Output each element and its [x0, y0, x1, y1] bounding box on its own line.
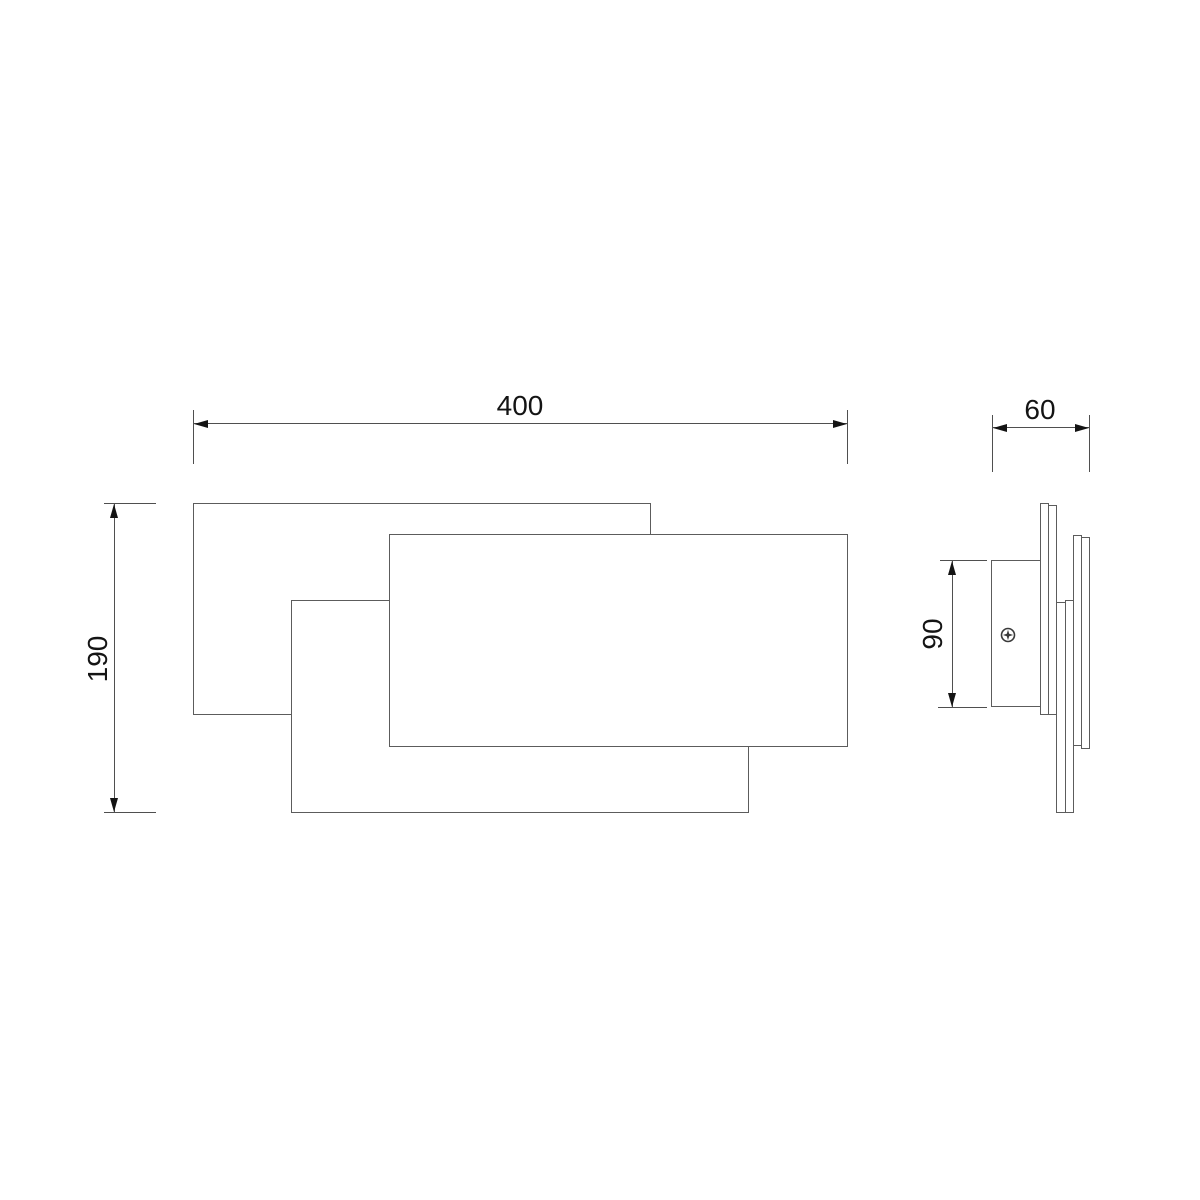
arrowhead-left-icon	[194, 420, 208, 428]
arrowhead-down-icon	[110, 798, 118, 812]
dimension-line	[114, 503, 115, 813]
front-front-panel	[389, 534, 848, 747]
dimension-bracket-height-label: 90	[919, 618, 947, 649]
arrowhead-up-icon	[948, 561, 956, 575]
dimension-width-label: 400	[420, 392, 620, 420]
extension-line	[104, 812, 156, 813]
technical-drawing-canvas: 400 190	[0, 0, 1200, 1200]
dimension-depth-label: 60	[990, 396, 1090, 424]
extension-line	[938, 707, 987, 708]
dimension-line	[952, 560, 953, 708]
arrowhead-right-icon	[1075, 424, 1089, 432]
dimension-height-label: 190	[84, 636, 112, 683]
arrowhead-up-icon	[110, 504, 118, 518]
screw-icon	[999, 626, 1017, 644]
side-front-panel-strip	[1081, 537, 1090, 749]
dimension-line	[193, 423, 848, 424]
arrowhead-right-icon	[833, 420, 847, 428]
arrowhead-down-icon	[948, 693, 956, 707]
extension-line	[847, 410, 848, 464]
extension-line	[193, 410, 194, 464]
arrowhead-left-icon	[993, 424, 1007, 432]
